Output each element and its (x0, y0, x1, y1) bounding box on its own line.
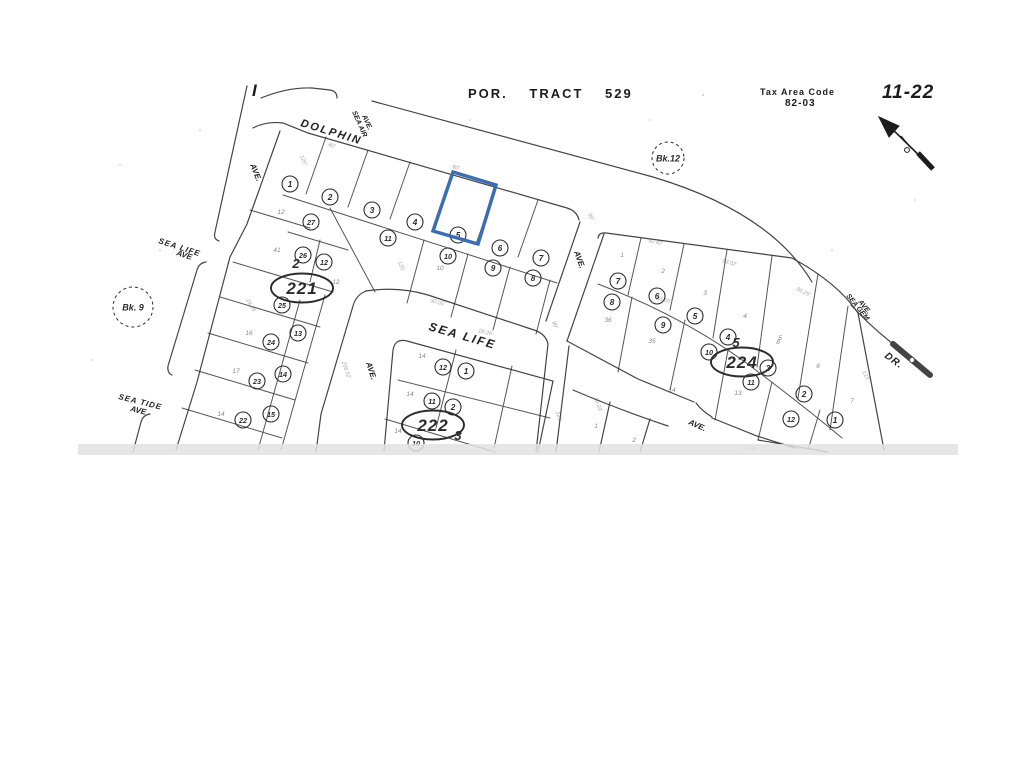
street-label: AVE. (686, 417, 707, 433)
parcel-number-text: 11 (384, 234, 391, 243)
parcel-number-text: 11 (747, 378, 754, 387)
street-label: AVE. (364, 360, 378, 381)
parcel-number-text: 13 (294, 329, 302, 338)
parcel-circled-number: 7 (610, 273, 626, 289)
parcel-number-text: 11 (428, 397, 435, 406)
parcel-map: 1234567272612111098251324142315221211121… (0, 0, 1024, 768)
dimension-text: 92.42' (648, 238, 665, 247)
dimension-text: 125' (298, 155, 308, 168)
road-dolphin-north-edge (261, 88, 337, 98)
north-arrow-icon (879, 117, 933, 169)
parcel-circled-number: 10 (440, 248, 456, 264)
lot-number-text: 2 (631, 437, 636, 444)
road-ave-bottom-north-edge (712, 418, 795, 448)
dimension-text: 206.92' (340, 360, 352, 381)
parcel-circled-number: 24 (263, 334, 279, 350)
block-se-top-edge (573, 390, 668, 426)
book-reference: Bk. 9 (113, 287, 153, 327)
street-label: AVE. (572, 249, 587, 270)
parcel-circled-number: 2 (322, 189, 338, 205)
parcel-circled-number: 23 (249, 373, 265, 389)
parcel-number-text: 10 (705, 348, 713, 357)
parcel-circled-number: 11 (424, 393, 440, 409)
parcel-number-text: 4 (725, 333, 731, 342)
road-dolphin-north-edge (372, 101, 812, 282)
parcel-circled-number: 1 (282, 176, 298, 192)
parcel-number-text: 12 (439, 363, 447, 372)
street-label: SEA LIFE (427, 319, 498, 352)
parcel-number-text: 8 (531, 274, 536, 283)
parcel-circled-number: 22 (235, 412, 251, 428)
lot-number-text: 3 (703, 290, 707, 297)
selected-parcel-highlight[interactable] (433, 172, 496, 244)
parcel-circled-number: 5 (687, 308, 703, 324)
book-reference: Bk.12 (652, 142, 684, 174)
block-prefix-text: 2 (291, 256, 300, 271)
parcel-circled-number: 4 (407, 214, 423, 230)
dimension-text: 80' (550, 321, 559, 331)
block-224-west-edge (567, 234, 604, 341)
parcel-number-text: 5 (693, 312, 698, 321)
tax-area-code-value: 82-03 (785, 98, 816, 109)
parcel-number-text: 6 (498, 244, 503, 253)
block-number-text: 222 (416, 416, 448, 435)
road-ave-224-north-edge (598, 233, 858, 313)
block-prefix-text: 3 (454, 428, 462, 443)
lot-number-text: 14 (406, 391, 414, 398)
parcel-number-text: 22 (238, 416, 247, 425)
lot-number-text: 2 (660, 268, 665, 275)
block-number-text: 224 (725, 353, 757, 372)
lot-number-text: 10 (436, 265, 444, 272)
parcel-circled-number: 12 (783, 411, 799, 427)
parcel-number-text: 15 (267, 410, 276, 419)
block-number-text: 221 (285, 279, 317, 298)
parcel-number-text: 1 (288, 180, 293, 189)
parcel-number-text: 2 (450, 403, 456, 412)
lot-number-text: 17 (232, 368, 240, 375)
scan-noise (91, 94, 916, 361)
road-dr-marker (909, 357, 914, 362)
parcel-number-text: 14 (279, 370, 287, 379)
dimension-text: 95.25' (795, 286, 812, 298)
block-number: 2245 (711, 335, 773, 377)
parcel-number-text: 12 (787, 415, 795, 424)
parcel-number-text: 9 (491, 264, 496, 273)
lot-number-text: 7 (850, 398, 854, 405)
parcel-circled-number: 27 (303, 214, 319, 230)
dimension-text: 30.03' (592, 397, 603, 414)
parcel-circled-number: 12 (316, 254, 332, 270)
parcel-circled-number: 6 (492, 240, 508, 256)
lot-number-text: 14 (668, 387, 676, 394)
lot-number-text: 12 (332, 279, 340, 286)
parcel-number-text: 12 (320, 258, 328, 267)
dimension-text: 60' (327, 142, 337, 150)
lot-number-text: 41 (273, 247, 281, 254)
lot-number-text: 4 (743, 313, 747, 320)
road-linework (133, 86, 930, 452)
lot-number-text: 1 (620, 252, 624, 259)
lot-number-text: 8 (776, 339, 780, 346)
parcel-circled-number: 3 (364, 202, 380, 218)
road-ave-west-edge (546, 222, 580, 321)
parcel-circled-number: 12 (435, 359, 451, 375)
lot-number-text: 14 (394, 428, 402, 435)
road-ave-bottom-hook (696, 403, 712, 417)
tax-area-code-label: Tax Area Code (760, 87, 835, 97)
parcel-circled-number: 14 (275, 366, 291, 382)
parcel-number-text: 27 (306, 218, 316, 227)
parcel-circled-number: 1 (827, 412, 843, 428)
parcel-number-text: 3 (370, 206, 375, 215)
road-dolphin-south-edge (253, 123, 579, 220)
assessor-map-page: 1234567272612111098251324142315221211121… (0, 0, 1024, 768)
parcel-circled-number: 15 (263, 406, 279, 422)
parcel-circled-number: 13 (290, 325, 306, 341)
road-ave-south-east-edge (556, 346, 569, 452)
parcel-number-text: 24 (266, 338, 275, 347)
dimension-text: 125' (396, 261, 406, 274)
lot-number-text: 14 (217, 411, 225, 418)
block-prefix-text: 5 (732, 335, 740, 350)
map-title: POR. TRACT 529 (468, 86, 633, 101)
lot-number-text: 12 (277, 209, 285, 216)
road-ave-middle-west-edge (316, 291, 366, 452)
lot-number-text: 36 (604, 317, 612, 324)
parcel-number-text: 2 (327, 193, 333, 202)
road-left-east-edge (176, 131, 280, 450)
sheet-number: 11-22 (882, 82, 934, 104)
lot-number-text: 1 (594, 423, 598, 430)
parcel-number-text: 1 (464, 367, 469, 376)
parcel-circled-number: 11 (380, 230, 396, 246)
road-left-west-edge (215, 86, 248, 241)
parcel-circled-number: 10 (701, 344, 717, 360)
parcel-circled-number: 8 (604, 294, 620, 310)
parcel-number-text: 10 (444, 252, 452, 261)
lot-number-text: 35 (648, 338, 656, 345)
dimension-text: 125' (554, 411, 563, 423)
lot-number-text: 14 (418, 353, 426, 360)
map-annotations: 1234567272612111098251324142315221211121… (113, 110, 905, 453)
parcel-number-text: 9 (661, 321, 666, 330)
parcel-number-text: 25 (277, 301, 287, 310)
road-left-west-edge (168, 262, 206, 375)
parcel-number-text: 7 (539, 254, 544, 263)
lot-number-text: 16 (245, 330, 253, 337)
dimension-text: 80' (586, 213, 595, 223)
page-edge-mark: I (252, 81, 257, 101)
parcel-number-text: 8 (610, 298, 615, 307)
parcel-number-text: 2 (801, 390, 807, 399)
dimension-text: 29.26' (244, 297, 258, 315)
parcel-number-text: 4 (412, 218, 418, 227)
parcel-circled-number: 7 (533, 250, 549, 266)
parcel-number-text: 23 (252, 377, 261, 386)
street-label: AVE. (248, 161, 263, 182)
parcel-circled-number: 9 (655, 317, 671, 333)
parcel-circled-number: 8 (525, 270, 541, 286)
scan-edge-band (78, 444, 958, 455)
parcel-circled-number: 1 (458, 363, 474, 379)
page-blank-area (0, 455, 1024, 768)
book-reference-text: Bk.12 (656, 154, 680, 164)
parcel-number-text: 7 (616, 277, 621, 286)
lot-number-text: 6 (816, 363, 820, 370)
parcel-number-text: 1 (833, 416, 838, 425)
lot-number-text: 13 (734, 390, 742, 397)
book-reference-text: Bk. 9 (122, 303, 144, 313)
